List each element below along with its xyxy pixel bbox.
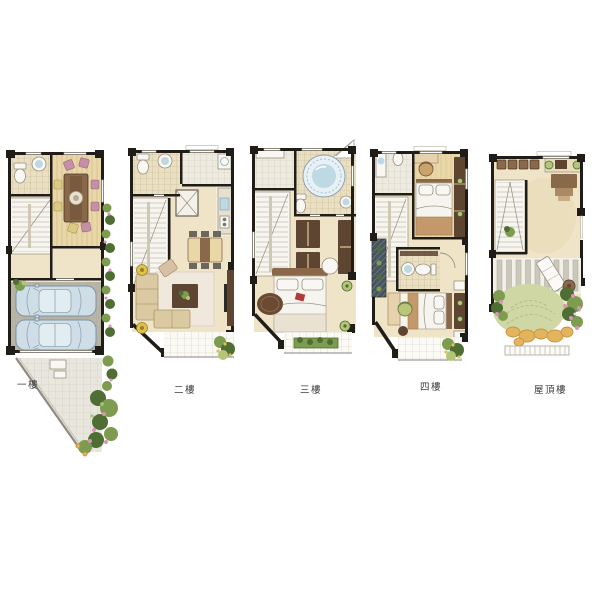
stairs-icon (495, 180, 525, 252)
garage (10, 282, 102, 352)
floor-roof-label: 屋頂樓 (534, 382, 567, 396)
vanity-stool-icon (322, 258, 338, 274)
wardrobe-icon (454, 157, 466, 237)
car-icon (16, 318, 96, 352)
toilet-icon (137, 154, 149, 174)
bedroom-upper (412, 151, 466, 237)
desk-chair-icon (419, 162, 433, 176)
stairs-icon (10, 198, 52, 254)
island-table (551, 174, 577, 188)
floor-4-label: 四樓 (420, 379, 442, 393)
sink-icon (158, 154, 172, 168)
floor-plan-2 (128, 142, 242, 380)
sink-icon (402, 263, 415, 276)
rug (257, 293, 283, 315)
lawn (493, 284, 565, 336)
floor-3-label: 三樓 (300, 382, 322, 396)
stepping-stones (506, 327, 573, 346)
dining-table-icon (64, 174, 88, 222)
bathtub-icon (303, 155, 345, 197)
sink-icon (32, 157, 46, 171)
desk-icon (414, 153, 438, 163)
dining-table-icon (188, 231, 222, 269)
trellis (505, 346, 569, 355)
floor-2-label: 二樓 (174, 382, 196, 396)
nightstand (454, 281, 465, 290)
floor-plan-sheet: 一樓 二樓 三樓 四樓 屋頂樓 (0, 0, 600, 600)
toilet-icon (393, 153, 403, 166)
toilet-icon (295, 194, 306, 213)
elevator-shaft (176, 190, 198, 216)
bed-icon (416, 179, 452, 235)
coffee-table-icon (172, 284, 198, 308)
plant-icon (573, 161, 581, 169)
washer-icon (218, 154, 231, 169)
flower-box (372, 239, 386, 297)
kitchen-sink-icon (220, 198, 229, 210)
plant-icon (545, 161, 553, 169)
desk-chair-icon (398, 302, 412, 316)
laundry-floor (254, 148, 294, 188)
stairs-icon (254, 192, 290, 276)
car-icon (16, 284, 96, 318)
toilet-icon (14, 163, 26, 183)
sink-icon (340, 196, 352, 208)
bathroom-floor (374, 151, 412, 193)
floor-plan-3 (250, 136, 362, 358)
floor-1-label: 一樓 (17, 377, 39, 391)
ottoman-icon (398, 326, 408, 336)
floor-plan-1 (6, 146, 122, 460)
toilet-icon (416, 264, 437, 275)
planter-boxes (294, 337, 338, 348)
wardrobe-icon (454, 293, 466, 329)
floor-plan-4 (370, 141, 474, 367)
floor-plan-roof (489, 146, 589, 358)
